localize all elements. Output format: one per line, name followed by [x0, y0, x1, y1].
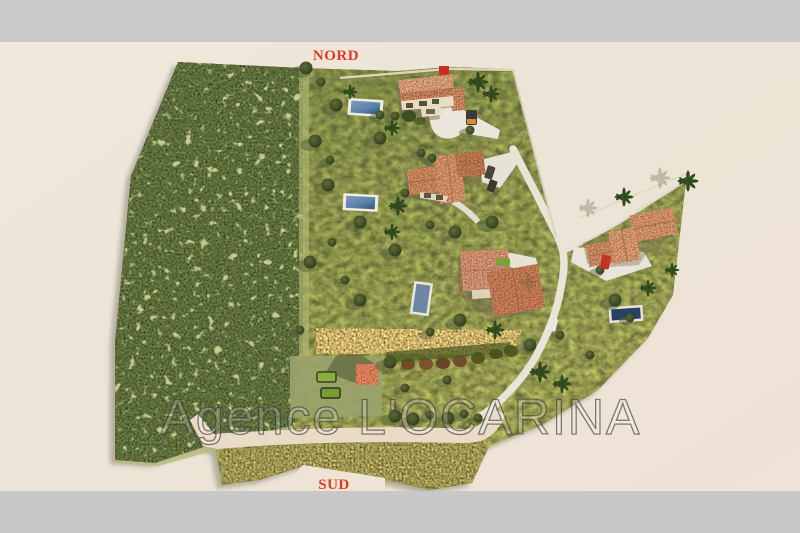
- svg-text:SUD: SUD: [318, 477, 350, 493]
- svg-text:NORD: NORD: [313, 48, 359, 64]
- svg-text:Agence L'OCARINA: Agence L'OCARINA: [161, 389, 642, 445]
